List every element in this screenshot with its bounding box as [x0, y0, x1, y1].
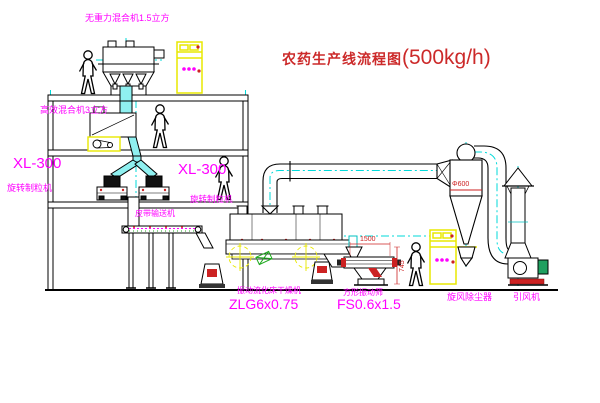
support-pedestal	[199, 264, 225, 288]
label-gravity-mixer: 无重力混合机1.5立方	[85, 14, 170, 23]
label-dryer-name: 振动流化床干燥机	[237, 287, 301, 295]
dimension-sieve-length: 1500	[360, 236, 376, 243]
belt-conveyor	[122, 226, 213, 288]
person-figure	[80, 51, 97, 94]
person-figure	[152, 105, 169, 148]
control-cabinet-right	[430, 230, 456, 284]
label-fan: 引风机	[513, 293, 540, 302]
dimension-sieve-height: 745	[399, 260, 406, 272]
label-granulator-left-name: 旋转制粒机	[7, 184, 52, 193]
gravity-mixer	[98, 41, 164, 102]
label-cyclone: 旋风除尘器	[447, 293, 492, 302]
label-dryer-model: ZLG6x0.75	[229, 297, 298, 311]
person-figure	[408, 243, 425, 286]
granulator-left	[97, 176, 127, 200]
panel-button	[182, 67, 186, 71]
support-pedestal	[311, 262, 333, 284]
indicator-light	[197, 69, 200, 72]
diagram-title: 农药生产线流程图 (500kg/h)	[282, 46, 491, 70]
dimension-cyclone-diameter: Φ600	[452, 181, 469, 188]
fan-base	[510, 279, 544, 284]
label-granulator-mid-model: XL-300	[178, 162, 226, 177]
indicator-light	[196, 45, 199, 48]
process-flow-diagram: 农药生产线流程图 (500kg/h) 无重力混合机1.5立方 高效混合机3立方 …	[0, 0, 600, 403]
fan-motor	[538, 260, 548, 274]
control-cabinet-top	[177, 42, 202, 93]
label-sieve-model: FS0.6x1.5	[337, 297, 401, 311]
title-capacity: (500kg/h)	[402, 46, 491, 70]
indicator-light	[451, 260, 454, 263]
panel-button	[445, 258, 449, 262]
panel-button	[435, 258, 439, 262]
y-chute	[111, 156, 157, 178]
panel-button	[192, 67, 196, 71]
granulator-right	[139, 176, 169, 200]
panel-button	[187, 67, 191, 71]
label-high-efficiency-mixer: 高效混合机3立方	[40, 106, 108, 115]
fluid-bed-dryer	[199, 206, 352, 288]
title-text: 农药生产线流程图	[282, 49, 402, 69]
panel-button	[440, 258, 444, 262]
label-granulator-left-model: XL-300	[13, 156, 61, 171]
label-belt-conveyor: 皮带输送机	[135, 210, 175, 218]
indicator-light	[450, 234, 453, 237]
exhaust-duct	[262, 161, 437, 214]
induced-draft-fan	[508, 258, 548, 285]
label-granulator-mid-name: 旋转制粒机	[190, 195, 233, 204]
